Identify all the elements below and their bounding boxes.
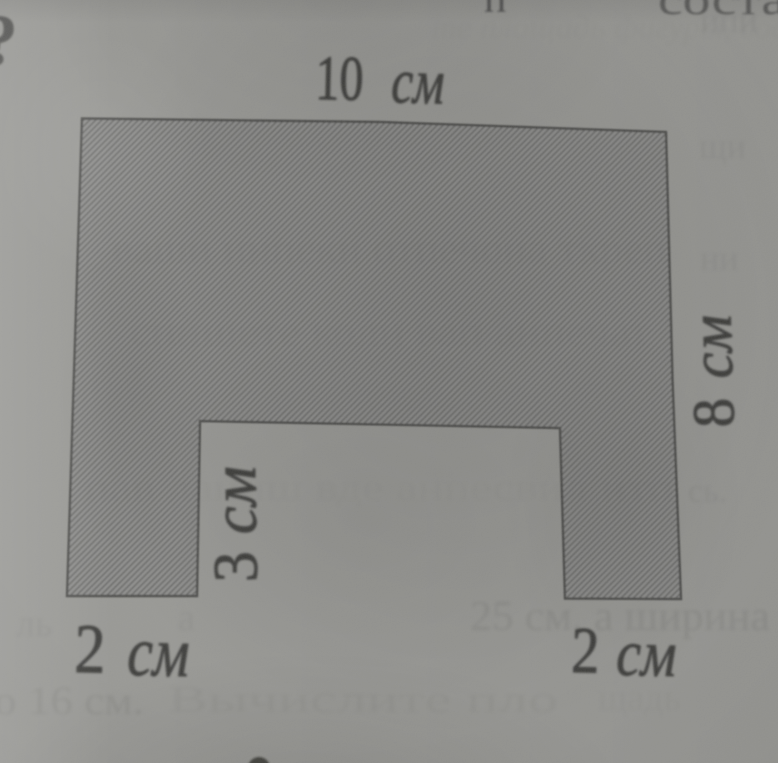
svg-text:10: 10	[315, 42, 365, 114]
svg-text:сь.: сь.	[688, 473, 727, 510]
svg-text:3: 3	[200, 551, 271, 583]
svg-text:ваши инпеки отпечона ткреп: ваши инпеки отпечона ткреп	[112, 226, 667, 271]
svg-text:соста: соста	[658, 0, 778, 24]
svg-text:?: ?	[0, 0, 18, 80]
svg-text:спишете коли вап анпечат: спишете коли вап анпечат	[130, 309, 650, 354]
svg-text:Вычислите пло: Вычислите пло	[168, 679, 558, 721]
svg-text:2: 2	[74, 611, 107, 689]
svg-text:о 16 см.: о 16 см.	[0, 678, 144, 723]
svg-text:п: п	[484, 0, 506, 22]
svg-text:см: см	[127, 614, 191, 692]
svg-text:см: см	[199, 466, 270, 535]
svg-text:2: 2	[571, 614, 601, 688]
svg-text:щи: щи	[699, 126, 746, 166]
svg-text:пав ланиш вде анпесвил итп: пав ланиш вде анпесвил итп	[84, 467, 674, 509]
svg-text:8: 8	[680, 397, 747, 429]
svg-text:ль: ль	[16, 603, 52, 645]
svg-text:ни: ни	[700, 238, 739, 278]
svg-text:см: см	[677, 314, 745, 380]
svg-text:см: см	[616, 617, 678, 691]
svg-text:см: см	[391, 45, 446, 117]
